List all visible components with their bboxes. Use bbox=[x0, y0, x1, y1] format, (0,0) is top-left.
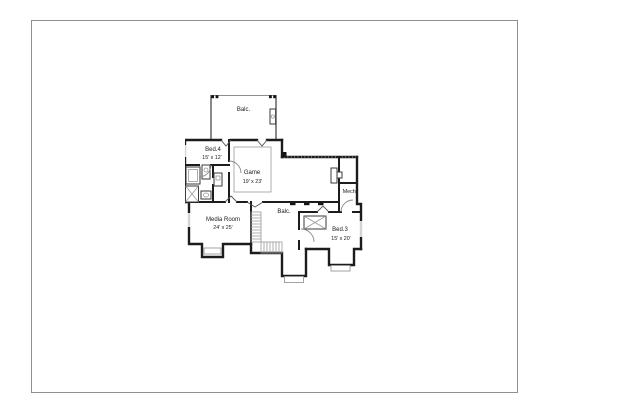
screenshot-root: { "window": { "background": "#ffffff", "… bbox=[0, 0, 620, 415]
wall-post bbox=[282, 152, 287, 157]
fireplace bbox=[331, 168, 342, 183]
room-label-bed3: Bed.3 bbox=[332, 227, 348, 233]
floor-plan: Balc. Bed.4 15' x 12' Game 19' x 23' Mec… bbox=[185, 95, 365, 295]
room-label-balcony-top: Balc. bbox=[237, 107, 251, 113]
room-dims-bed3: 15' x 20' bbox=[331, 236, 350, 242]
toilet bbox=[201, 191, 211, 199]
room-label-media-room: Media Room bbox=[206, 217, 240, 223]
railing-posts bbox=[290, 203, 324, 205]
drawing-canvas: Balc. Bed.4 15' x 12' Game 19' x 23' Mec… bbox=[31, 20, 518, 393]
room-label-game: Game bbox=[244, 170, 261, 176]
room-label-mech: Mech. bbox=[343, 189, 357, 195]
room-dims-bed4: 15' x 12' bbox=[202, 155, 221, 161]
room-label-bed4: Bed.4 bbox=[205, 147, 221, 153]
linen-closet bbox=[186, 186, 199, 202]
stairs bbox=[251, 212, 282, 253]
bed3-closet bbox=[304, 216, 326, 229]
room-dims-media-room: 24' x 25' bbox=[213, 225, 232, 231]
chase bbox=[214, 173, 222, 186]
room-dims-game: 19' x 23' bbox=[243, 179, 262, 185]
room-label-balcony-center: Balc. bbox=[277, 209, 291, 215]
balcony-top-structure bbox=[211, 95, 276, 140]
